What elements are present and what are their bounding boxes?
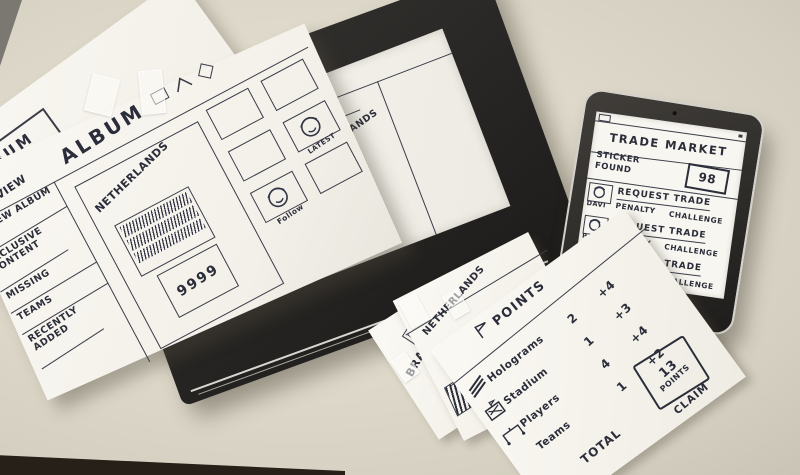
floor-corner [0, 0, 22, 66]
panel-count: 9999 [174, 262, 221, 300]
table-edge [0, 453, 345, 475]
camera-dot [672, 111, 677, 116]
sticker-slot-avatar[interactable]: LATEST [282, 100, 340, 153]
sticker-count: 98 [697, 171, 717, 186]
sticker-slot[interactable] [228, 129, 286, 182]
challenge-link[interactable]: CHALLENGE [664, 243, 719, 258]
desk-scene: ARGENTINA MISSING TEAMS RECENTLY ADDED I… [0, 0, 800, 475]
trader-name: DAVI [586, 200, 606, 209]
sketch-diamond-icon [198, 63, 213, 78]
total-label: TOTAL [579, 427, 624, 467]
sticker-count-box: 98 [684, 163, 730, 195]
menu-sketch [738, 134, 742, 138]
tape [138, 69, 166, 115]
tab-sketch [598, 114, 611, 123]
pennant-icon [471, 318, 495, 342]
sticker-slot-avatar[interactable]: Follow [250, 171, 308, 224]
challenge-link[interactable]: CHALLENGE [668, 210, 723, 225]
